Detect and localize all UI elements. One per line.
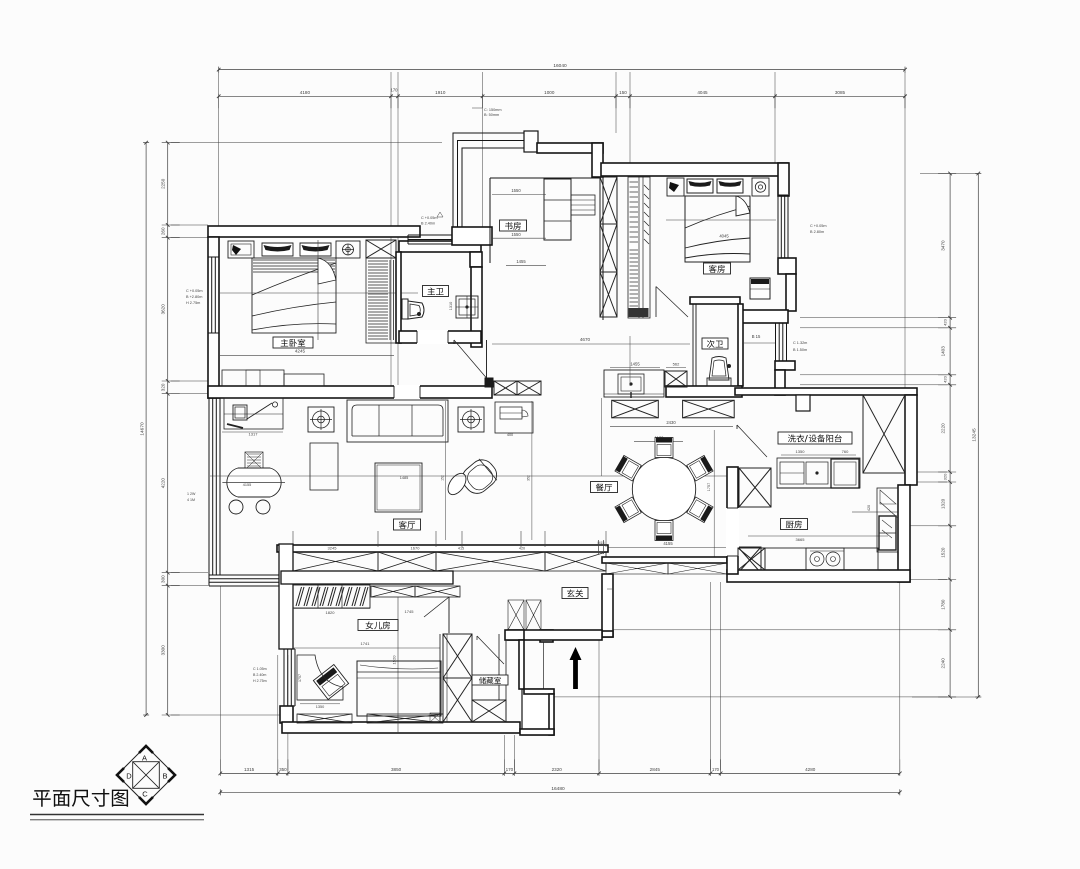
svg-text:C: 150mm: C: 150mm [484,108,502,112]
svg-text:562: 562 [673,362,680,367]
svg-text:1670: 1670 [411,546,421,551]
svg-text:1485: 1485 [400,476,408,480]
svg-text:H 2.75m: H 2.75m [186,301,200,305]
svg-text:4180: 4180 [300,90,311,95]
svg-text:1745: 1745 [405,609,415,614]
svg-text:13245: 13245 [972,428,978,442]
svg-text:3300: 3300 [161,645,166,656]
svg-text:3665: 3665 [796,537,806,542]
svg-text:3620: 3620 [161,304,166,315]
svg-text:170: 170 [506,767,514,772]
svg-text:4280: 4280 [805,767,816,772]
svg-text:4 1M: 4 1M [187,498,195,502]
svg-text:1757: 1757 [707,483,711,491]
svg-text:C 1.32m: C 1.32m [793,341,807,345]
svg-text:1741: 1741 [361,641,371,646]
svg-text:320: 320 [943,473,948,480]
svg-text:4245: 4245 [295,349,306,354]
svg-text:4045: 4045 [697,90,708,95]
svg-text:4670: 4670 [580,337,591,342]
svg-text:1550: 1550 [511,232,521,237]
svg-text:1520: 1520 [940,547,945,558]
svg-text:300: 300 [161,575,166,583]
svg-text:C +0.05m: C +0.05m [421,216,438,220]
svg-text:B +2.80m: B +2.80m [186,295,202,299]
svg-text:4220: 4220 [160,478,165,489]
svg-text:2430: 2430 [666,420,676,425]
svg-text:352: 352 [527,475,531,481]
svg-text:1317: 1317 [249,432,259,437]
svg-text:A: A [142,754,147,763]
svg-text:B 15: B 15 [752,334,761,339]
svg-text:C: C [142,790,148,799]
svg-text:420: 420 [943,318,948,325]
svg-text:1350: 1350 [796,449,806,454]
svg-text:4045: 4045 [719,234,729,239]
svg-text:400: 400 [507,433,513,437]
svg-text:152: 152 [441,475,445,481]
svg-text:1403: 1403 [941,346,946,357]
svg-text:C +0.05m: C +0.05m [810,224,827,228]
svg-text:1820: 1820 [326,610,336,615]
svg-text:170: 170 [712,767,720,772]
svg-text:3245: 3245 [328,546,338,551]
svg-text:B: B [162,772,167,781]
svg-text:1000: 1000 [544,90,555,95]
svg-text:B 1.50m: B 1.50m [793,348,807,352]
svg-text:1320: 1320 [941,498,946,509]
svg-text:1455: 1455 [516,259,526,264]
svg-text:H 2.75m: H 2.75m [253,679,267,683]
svg-text:B: 50mm: B: 50mm [484,113,499,117]
svg-text:3085: 3085 [835,90,846,95]
svg-text:420: 420 [519,547,525,551]
svg-text:2250: 2250 [161,178,166,189]
svg-text:320: 320 [161,383,166,391]
svg-text:170: 170 [391,88,399,93]
svg-text:C 1.05m: C 1.05m [253,667,267,671]
svg-text:1780: 1780 [940,599,945,610]
svg-text:D: D [126,772,132,781]
svg-text:1520: 1520 [392,655,397,665]
svg-text:2240: 2240 [940,658,945,669]
svg-text:3470: 3470 [941,240,946,251]
svg-text:4155: 4155 [243,483,251,487]
svg-text:B 2.40m: B 2.40m [253,673,266,677]
svg-text:B 2.80m: B 2.80m [810,230,824,234]
svg-text:14670: 14670 [140,422,146,436]
svg-text:1455: 1455 [630,362,640,367]
svg-text:3850: 3850 [391,767,402,772]
svg-text:1315: 1315 [244,767,255,772]
svg-text:C +0.05m: C +0.05m [186,289,203,293]
svg-text:4155: 4155 [663,541,673,546]
svg-text:350: 350 [279,767,287,772]
svg-text:260: 260 [161,227,166,235]
svg-text:1310: 1310 [449,302,453,310]
svg-text:1550: 1550 [511,188,521,193]
svg-text:1757: 1757 [298,674,302,682]
svg-text:420: 420 [867,505,871,511]
svg-text:2220: 2220 [941,423,946,434]
svg-text:16480: 16480 [551,786,565,792]
svg-text:420: 420 [943,375,948,382]
svg-text:B 2.40m: B 2.40m [421,222,435,226]
svg-text:1 2W: 1 2W [187,492,196,496]
svg-text:1910: 1910 [435,90,446,95]
svg-text:2845: 2845 [650,767,661,772]
svg-text:2320: 2320 [552,767,563,772]
svg-text:16040: 16040 [553,63,567,69]
svg-text:150: 150 [619,90,627,95]
svg-text:1350: 1350 [316,705,324,709]
svg-text:760: 760 [842,449,849,454]
svg-text:415: 415 [458,547,464,551]
